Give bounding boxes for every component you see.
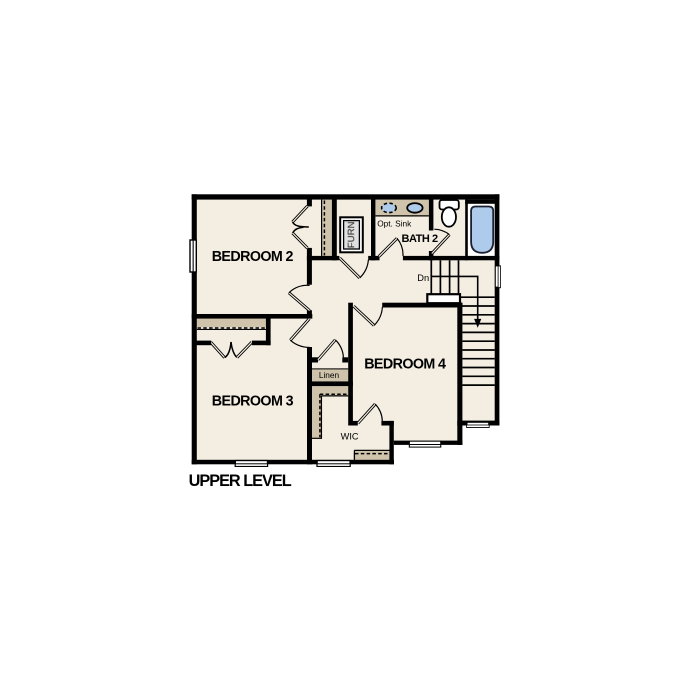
svg-text:FURN: FURN [346, 221, 357, 248]
svg-text:BATH 2: BATH 2 [401, 233, 438, 245]
svg-text:Opt. Sink: Opt. Sink [377, 218, 412, 228]
svg-text:UPPER LEVEL: UPPER LEVEL [189, 472, 292, 490]
svg-text:Dn: Dn [417, 273, 429, 283]
svg-text:BEDROOM 2: BEDROOM 2 [212, 249, 294, 265]
svg-text:Linen: Linen [319, 370, 340, 380]
svg-text:BEDROOM 3: BEDROOM 3 [212, 394, 294, 410]
svg-text:WIC: WIC [341, 431, 359, 441]
svg-text:BEDROOM 4: BEDROOM 4 [364, 357, 446, 373]
